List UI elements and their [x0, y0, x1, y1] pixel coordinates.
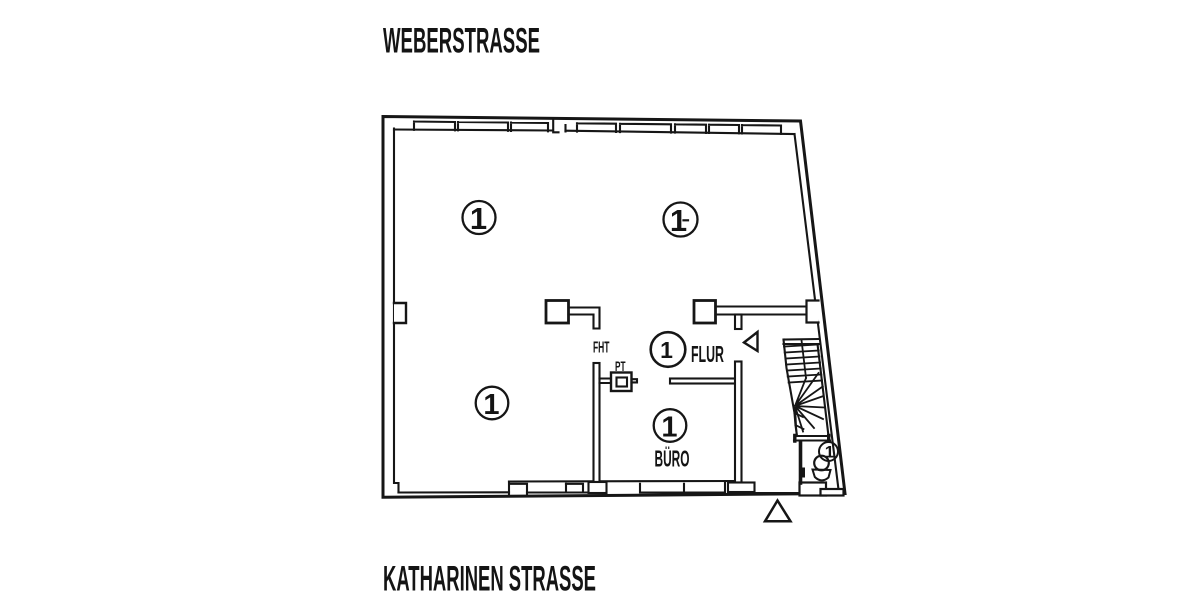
- svg-text:FHT: FHT: [593, 339, 610, 356]
- svg-text:FLUR: FLUR: [691, 341, 724, 367]
- svg-text:1: 1: [470, 201, 487, 236]
- svg-text:1: 1: [661, 411, 677, 443]
- svg-text:WEBERSTRASSE: WEBERSTRASSE: [383, 21, 540, 61]
- svg-text:1: 1: [660, 337, 673, 363]
- svg-text:1: 1: [483, 389, 499, 421]
- svg-text:PT: PT: [615, 358, 626, 374]
- svg-text:KATHARINEN STRASSE: KATHARINEN STRASSE: [383, 559, 596, 599]
- svg-text:BÜRO: BÜRO: [655, 446, 690, 472]
